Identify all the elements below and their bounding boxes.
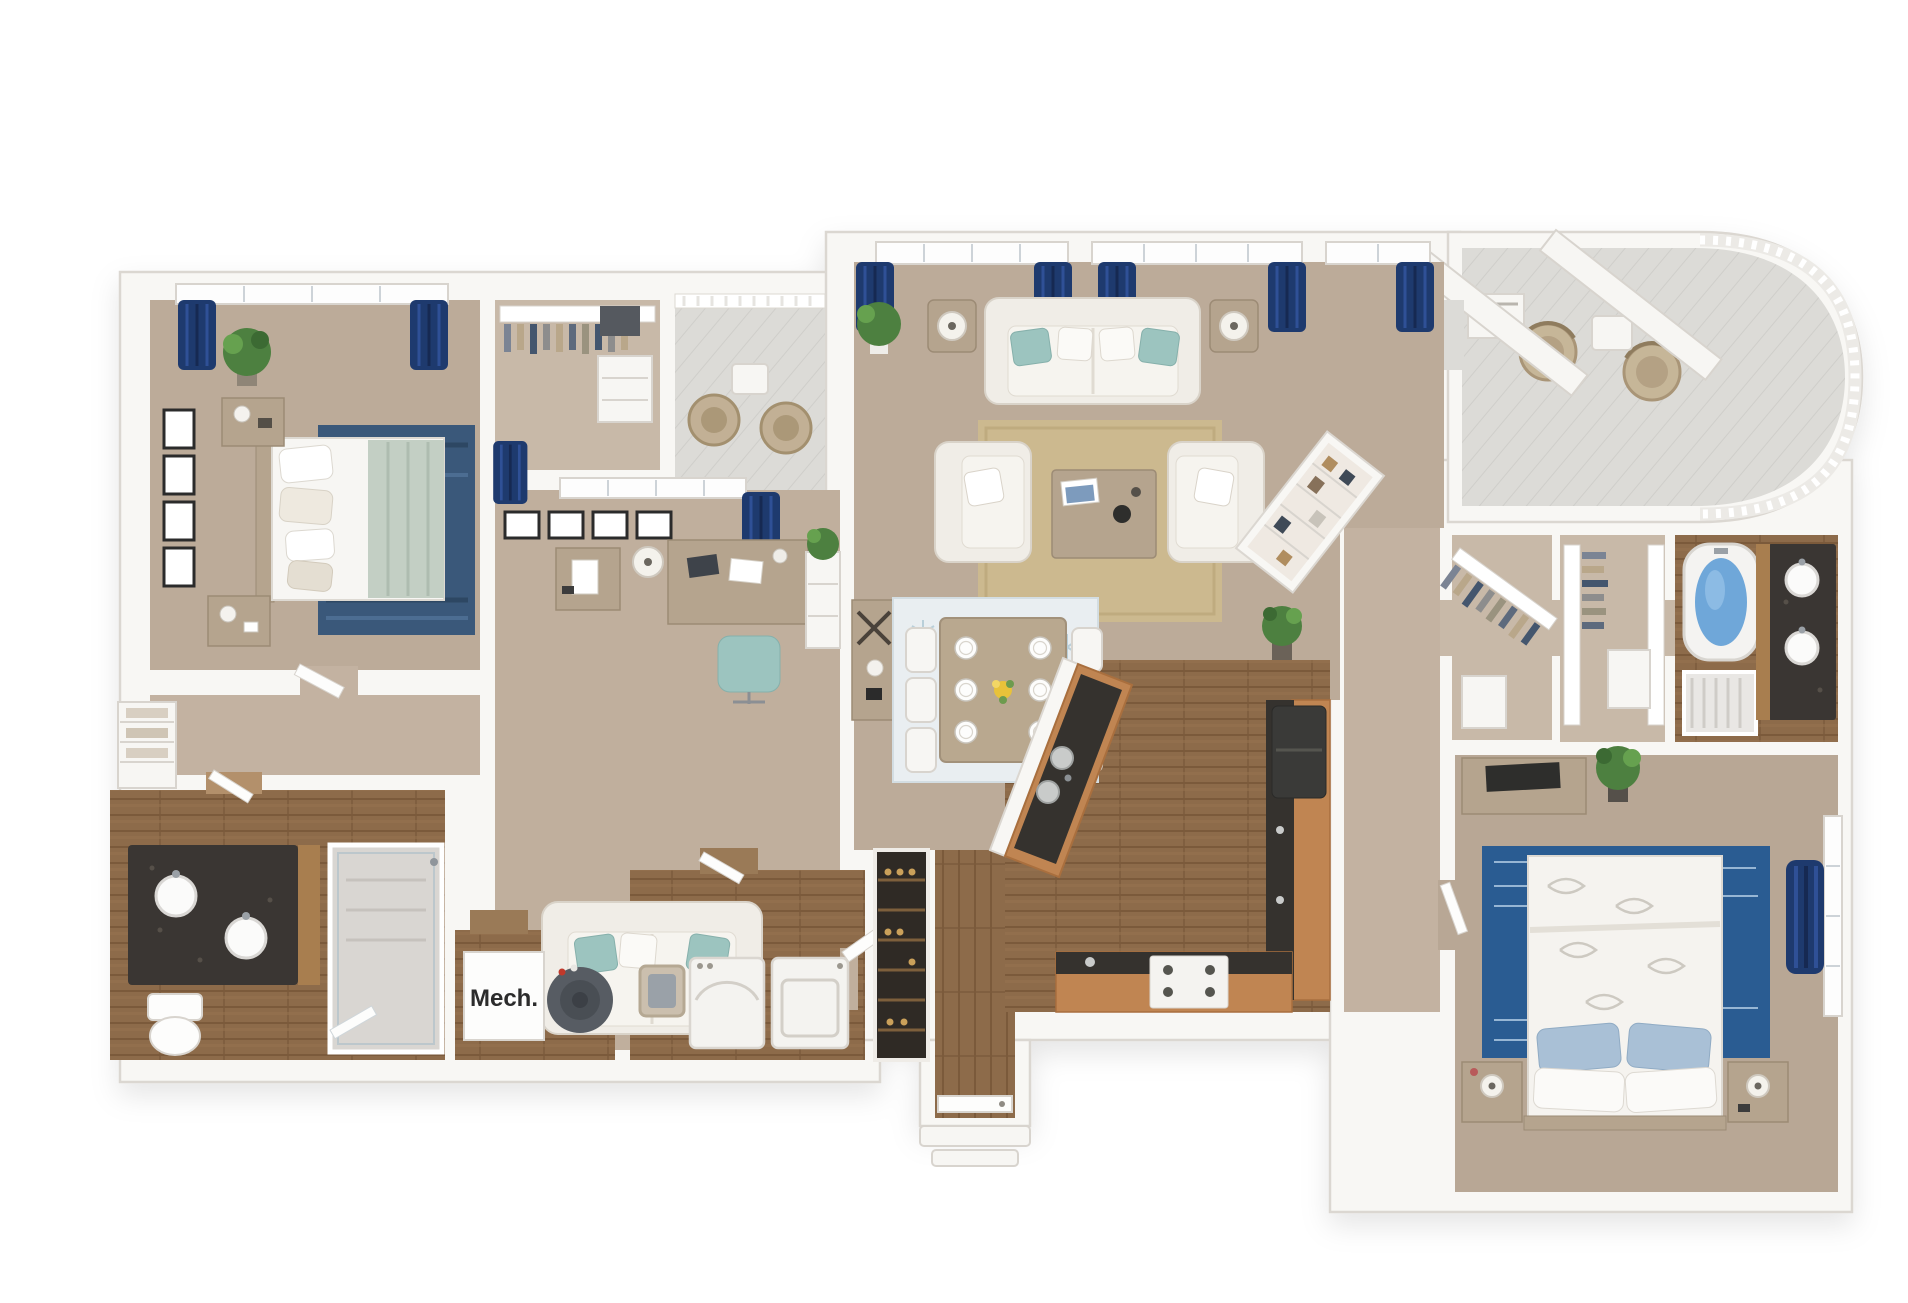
nightstand-lamp [1462, 1062, 1522, 1122]
hallway-right-floor [1344, 528, 1440, 1012]
range [1150, 956, 1228, 1008]
nightstand-lamp [1728, 1062, 1788, 1122]
sink [156, 876, 196, 916]
pillow-white [1533, 1068, 1625, 1113]
pillow-blue [1536, 1023, 1622, 1074]
curtain-bunched [1786, 860, 1824, 974]
patio-table [1592, 316, 1632, 350]
side-table-lamp [1210, 300, 1258, 352]
sink [1786, 564, 1818, 596]
shower [330, 845, 442, 1052]
dryer [772, 958, 848, 1048]
curtain [178, 300, 216, 370]
side-cabinet [556, 548, 620, 610]
washer [690, 958, 764, 1048]
window [560, 478, 746, 498]
nightstand [208, 596, 270, 646]
shower [1684, 672, 1756, 734]
curtain [1396, 262, 1434, 332]
dresser [598, 356, 652, 422]
sink [226, 918, 266, 958]
floor-lamp [633, 547, 663, 577]
floor-plan-svg: Mech. [0, 0, 1908, 1303]
linen-shelves [118, 702, 176, 788]
pillow-blue [1626, 1023, 1712, 1074]
island-sink [1051, 747, 1073, 769]
storage-box [1608, 650, 1650, 708]
toilet [148, 994, 202, 1055]
pillow-white [1625, 1067, 1718, 1113]
room-balcony-2 [1414, 230, 1855, 514]
mech-box: Mech. [464, 952, 544, 1040]
kitchen-bottom-run [1056, 952, 1292, 1012]
double-vanity [1756, 544, 1836, 720]
entry-floor [935, 850, 1015, 1118]
armchair [935, 442, 1031, 562]
storage-box [1462, 676, 1506, 728]
garden-tub [1684, 544, 1758, 660]
bed [256, 436, 444, 602]
door-step [920, 1126, 1030, 1146]
nightstand [222, 398, 284, 446]
bed [1524, 856, 1726, 1130]
patio-chair [761, 403, 811, 453]
room-bathroom-2 [1684, 544, 1836, 734]
island-sink [1037, 781, 1059, 803]
door-step [932, 1150, 1018, 1166]
side-table-lamp [928, 300, 976, 352]
hallway-left-floor [150, 695, 480, 775]
laundry-basket [640, 966, 684, 1016]
dresser-tv [1462, 758, 1586, 814]
bookshelf-plant [806, 528, 840, 648]
wine-rack [875, 850, 928, 1060]
refrigerator [1272, 706, 1326, 798]
curtain [493, 441, 527, 504]
coffee-table [1052, 470, 1156, 558]
console-table [852, 600, 898, 720]
storage-box [600, 306, 640, 336]
desk [668, 540, 808, 624]
sofa [985, 298, 1200, 404]
patio-table [732, 364, 768, 394]
curtain [1268, 262, 1306, 332]
floor-plan-stage: Mech. [0, 0, 1908, 1303]
sink [1786, 632, 1818, 664]
mech-label: Mech. [470, 985, 538, 1012]
vanity [128, 845, 320, 985]
curtain [410, 300, 448, 370]
patio-chair [689, 395, 739, 445]
